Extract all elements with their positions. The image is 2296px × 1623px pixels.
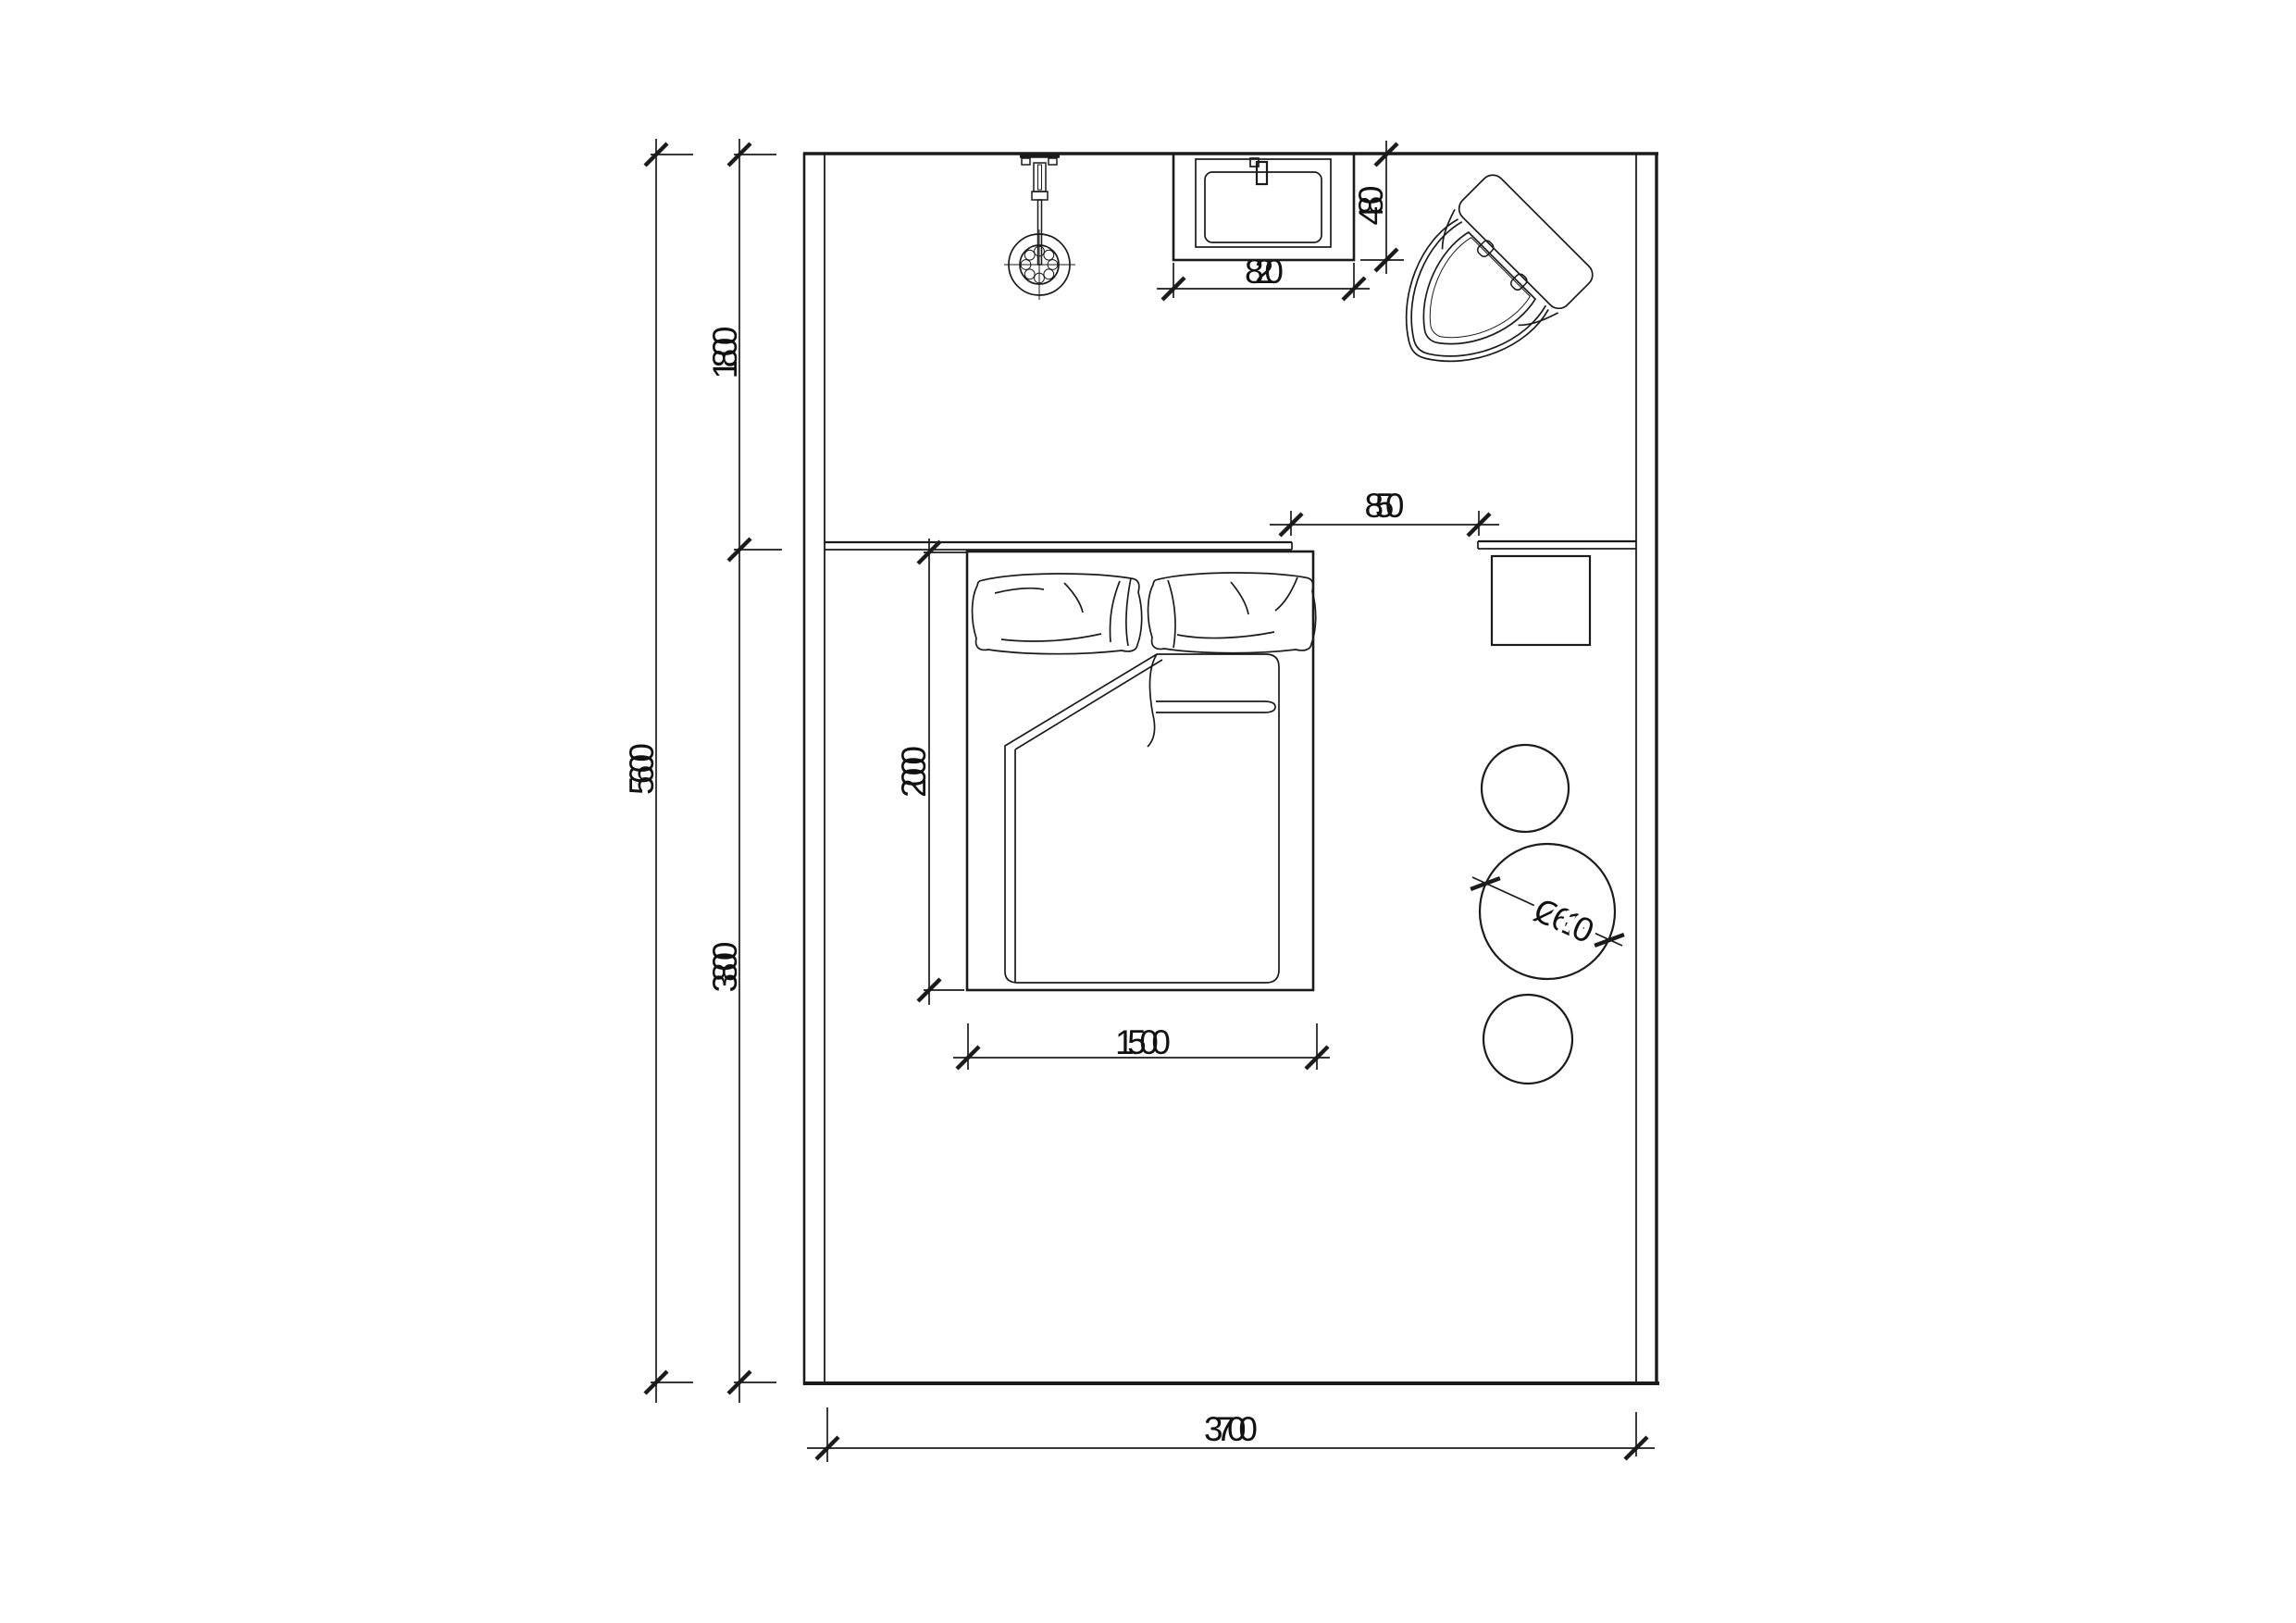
dim-label-1500: 1500: [1115, 1023, 1171, 1061]
toilet-bowl-outer: [1368, 217, 1551, 400]
toilet-seat: [1394, 230, 1536, 373]
pillow-right: [1148, 573, 1316, 653]
duvet-fold-inner: [1015, 660, 1162, 750]
dim-label-3800: 3800: [706, 942, 744, 993]
shower-head: [1004, 156, 1075, 300]
basin-inner: [1205, 172, 1322, 242]
floor-plan-drawing: 5600 1800 3800 2000 1500 3700: [0, 0, 2296, 1623]
headboard-ledge: [825, 542, 1292, 550]
duvet: [1005, 654, 1279, 983]
double-bed: [967, 551, 1316, 990]
shower-arm: [1034, 163, 1046, 192]
toilet: [1362, 170, 1597, 405]
duvet-outline: [1005, 654, 1279, 983]
basin-counter: [1173, 154, 1354, 260]
dimension-bed-to-table-gap: 850: [1270, 487, 1499, 536]
dim-label-820: 820: [1245, 253, 1284, 291]
side-counter: [1478, 541, 1636, 549]
washbasin: [1173, 154, 1354, 260]
dim-label-480: 480: [1352, 186, 1390, 226]
dimension-bed-length: 2000: [895, 539, 966, 1005]
floor-plan-page: 5600 1800 3800 2000 1500 3700: [0, 0, 2296, 1623]
dim-label-610: Ø610: [1528, 891, 1599, 951]
duvet-fold-band: [1156, 701, 1275, 712]
stool-bottom: [1483, 995, 1572, 1084]
dim-label-2000: 2000: [895, 746, 933, 798]
dimension-zone-depths: 1800 3800: [706, 139, 782, 1403]
dimension-room-width: 3700: [807, 1407, 1655, 1462]
side-table: [1492, 556, 1590, 645]
dimension-table-diameter: Ø610: [1471, 869, 1624, 955]
dim-label-850: 850: [1365, 487, 1405, 525]
pillow-left: [973, 574, 1142, 654]
dimension-bed-width: 1500: [953, 1023, 1330, 1070]
dimension-basin-depth: 480: [1352, 141, 1404, 274]
toilet-bowl-rim: [1375, 220, 1548, 393]
dim-label-5600: 5600: [623, 743, 661, 795]
bed-frame: [967, 551, 1313, 990]
dim-label-3700: 3700: [1204, 1410, 1258, 1448]
stool-top: [1482, 745, 1569, 832]
dim-label-1800: 1800: [706, 327, 744, 379]
dimension-overall-depth: 5600: [623, 139, 693, 1403]
